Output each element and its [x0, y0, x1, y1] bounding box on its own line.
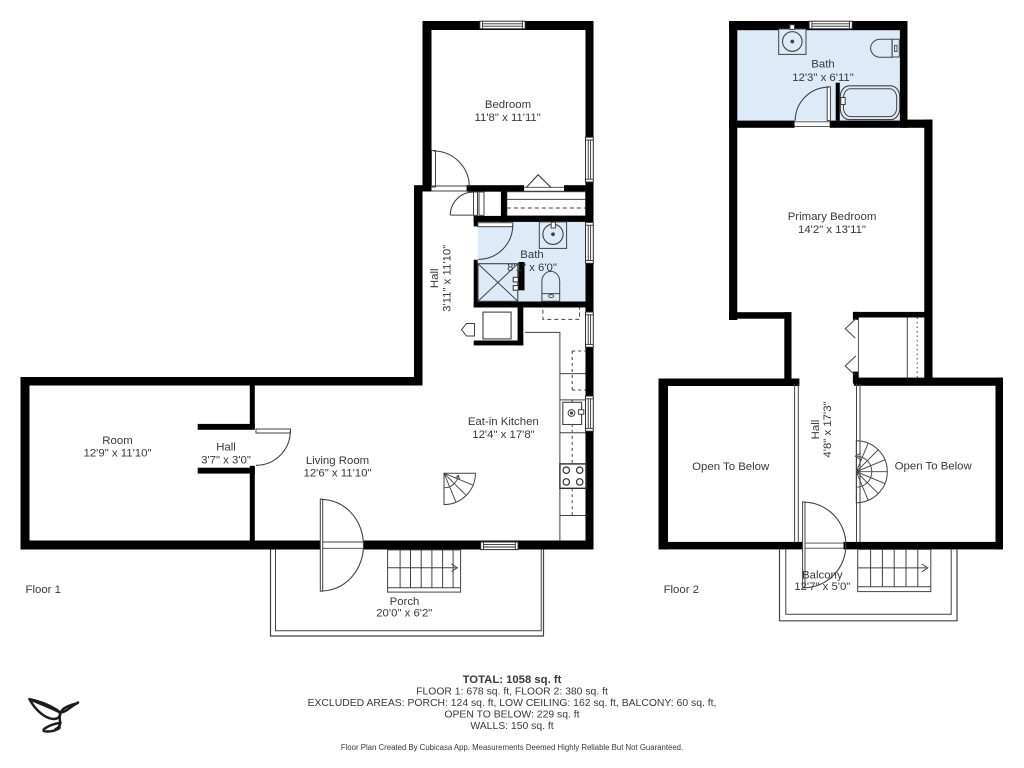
svg-text:12'3" x 6'11": 12'3" x 6'11" [792, 72, 854, 84]
svg-text:Hall: Hall [429, 268, 441, 288]
svg-text:Eat-in Kitchen: Eat-in Kitchen [468, 416, 539, 428]
svg-text:Room: Room [102, 435, 132, 447]
svg-text:4'8" x 17'3": 4'8" x 17'3" [822, 401, 834, 457]
svg-text:Bath: Bath [520, 249, 543, 261]
svg-text:Primary Bedroom: Primary Bedroom [788, 211, 877, 223]
svg-text:8'1" x 6'0": 8'1" x 6'0" [507, 262, 557, 274]
svg-text:OPEN TO BELOW: 229 sq. ft: OPEN TO BELOW: 229 sq. ft [444, 710, 579, 721]
svg-text:TOTAL: 1058 sq. ft: TOTAL: 1058 sq. ft [463, 674, 562, 686]
svg-text:Bedroom: Bedroom [485, 99, 531, 111]
svg-text:WALLS: 150 sq. ft: WALLS: 150 sq. ft [470, 721, 553, 732]
svg-text:3'11" x 11'10": 3'11" x 11'10" [441, 245, 453, 312]
svg-text:FLOOR 1: 678 sq. ft, FLOOR 2:: FLOOR 1: 678 sq. ft, FLOOR 2: 380 sq. ft [416, 687, 608, 698]
svg-text:14'2" x 13'11": 14'2" x 13'11" [798, 224, 866, 236]
svg-text:12'7" x 5'0": 12'7" x 5'0" [794, 581, 850, 593]
svg-text:11'8" x 11'11": 11'8" x 11'11" [475, 112, 541, 124]
svg-text:Floor 2: Floor 2 [664, 584, 699, 596]
svg-text:12'9" x 11'10": 12'9" x 11'10" [84, 448, 152, 460]
svg-text:Open To Below: Open To Below [895, 461, 973, 473]
svg-text:12'4" x 17'8": 12'4" x 17'8" [472, 429, 534, 441]
svg-text:3'7" x 3'0": 3'7" x 3'0" [201, 454, 251, 466]
svg-text:Hall: Hall [216, 441, 236, 453]
svg-text:Living Room: Living Room [306, 455, 369, 467]
svg-text:Floor Plan Created By Cubicasa: Floor Plan Created By Cubicasa App. Meas… [341, 743, 683, 752]
svg-text:Balcony: Balcony [802, 569, 843, 581]
svg-text:Porch: Porch [390, 596, 420, 608]
svg-text:20'0" x 6'2": 20'0" x 6'2" [376, 608, 432, 620]
svg-text:EXCLUDED AREAS: PORCH: 124 sq.: EXCLUDED AREAS: PORCH: 124 sq. ft, LOW C… [308, 698, 717, 709]
svg-text:12'6" x 11'10": 12'6" x 11'10" [304, 467, 372, 479]
svg-text:Hall: Hall [810, 420, 822, 440]
svg-text:Bath: Bath [811, 59, 834, 71]
svg-text:Floor 1: Floor 1 [26, 584, 61, 596]
svg-text:Open To Below: Open To Below [692, 461, 770, 473]
